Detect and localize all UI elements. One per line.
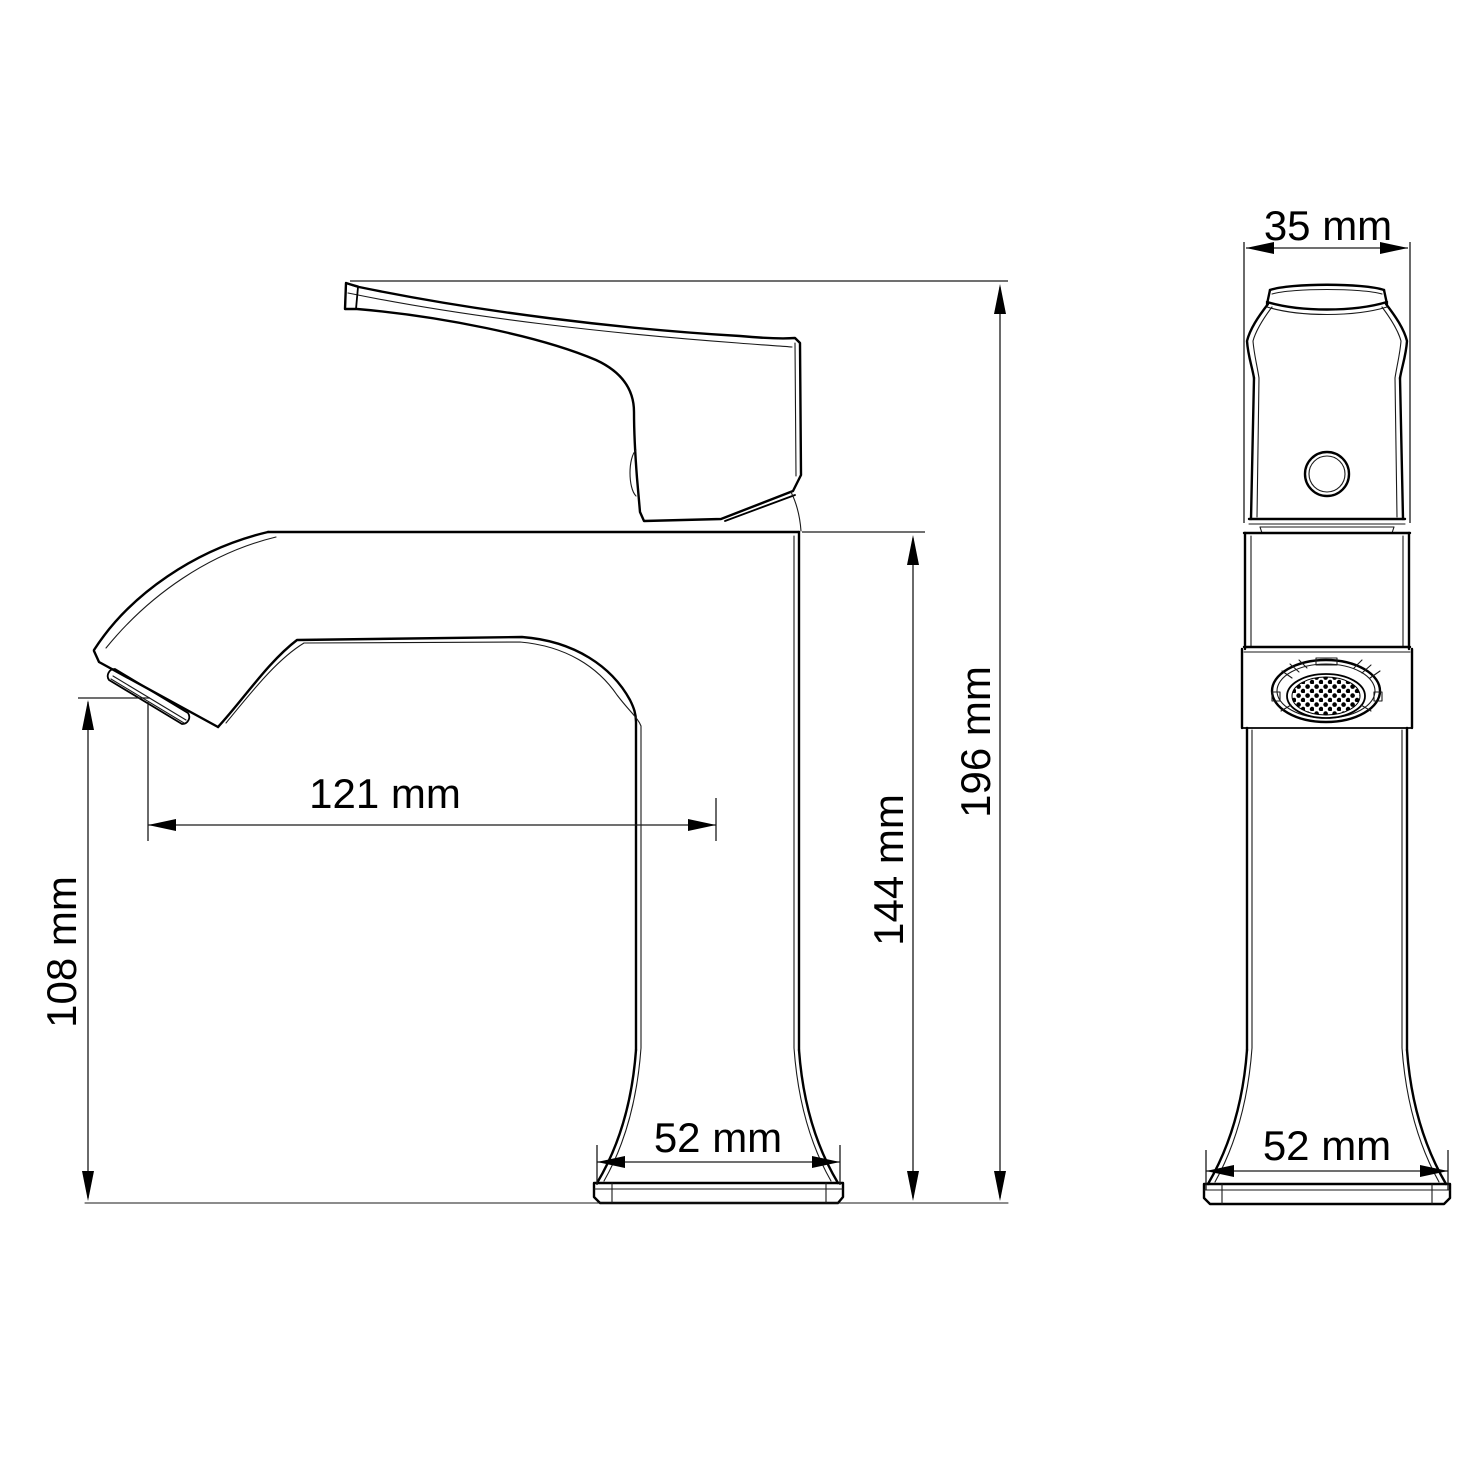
spout-body-outline <box>94 532 843 1203</box>
dim-base-width-front: 52 mm <box>1206 1122 1448 1190</box>
faucet-technical-drawing: 35 mm 196 mm 144 mm 121 mm <box>0 0 1480 1480</box>
dim-label-overall-height: 196 mm <box>952 666 999 818</box>
front-view <box>1204 285 1450 1204</box>
side-view <box>85 283 1008 1203</box>
dim-outlet-height: 108 mm <box>38 698 150 1201</box>
dim-label-spout-reach: 121 mm <box>309 770 461 817</box>
dim-base-width-side: 52 mm <box>597 1114 840 1185</box>
dim-label-spout-body-height: 144 mm <box>865 794 912 946</box>
dim-spout-reach: 121 mm <box>148 702 716 841</box>
aerator-icon <box>1272 658 1382 722</box>
dim-label-handle-width: 35 mm <box>1264 202 1392 249</box>
dim-overall-height: 196 mm <box>350 281 1008 1201</box>
dim-label-outlet-height: 108 mm <box>38 876 85 1028</box>
dim-label-base-width-front: 52 mm <box>1263 1122 1391 1169</box>
handle-button <box>1305 452 1349 496</box>
dim-handle-width: 35 mm <box>1244 202 1410 523</box>
handle-side-outline <box>345 283 801 531</box>
dim-label-base-width-side: 52 mm <box>654 1114 782 1161</box>
dim-spout-body-height: 144 mm <box>802 532 925 1201</box>
dimensions: 35 mm 196 mm 144 mm 121 mm <box>38 202 1448 1201</box>
drawing-canvas: 35 mm 196 mm 144 mm 121 mm <box>0 0 1480 1480</box>
body-front-outline <box>1204 533 1450 1204</box>
handle-front-outline <box>1247 285 1407 533</box>
